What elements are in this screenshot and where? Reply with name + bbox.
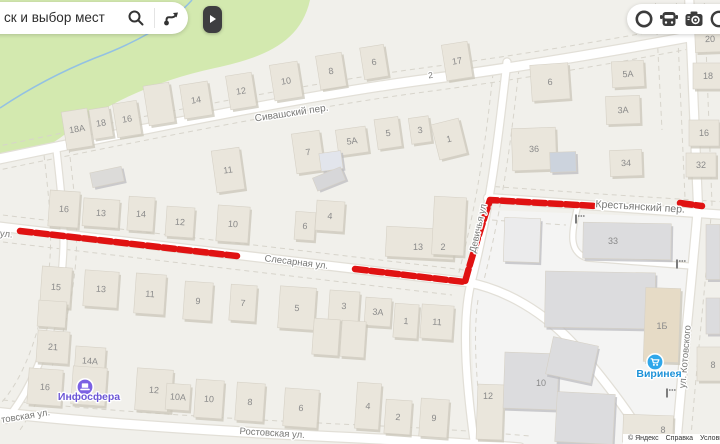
- building-label: 6: [298, 403, 304, 413]
- building-label: 13: [413, 242, 423, 252]
- building: [503, 217, 543, 265]
- building-label: 1: [403, 316, 409, 326]
- expand-arrow-icon: [210, 15, 216, 23]
- building: 6: [283, 388, 322, 431]
- building: 1: [393, 303, 421, 341]
- building: 6: [530, 63, 573, 104]
- camera-icon[interactable]: [683, 8, 705, 30]
- building-label: 6: [302, 221, 308, 231]
- building-label: 4: [365, 401, 371, 411]
- building: 4: [354, 382, 383, 432]
- building: [340, 320, 369, 360]
- building-label: 21: [48, 342, 59, 353]
- building-label: 5А: [622, 69, 634, 80]
- building-label: 3А: [617, 105, 628, 115]
- building-label: 1Б: [657, 321, 668, 331]
- building: [706, 298, 720, 337]
- building-label: 5А: [346, 135, 358, 146]
- building: 11: [133, 273, 168, 318]
- building-label: 3: [341, 301, 347, 311]
- divider: [154, 8, 155, 28]
- building: [555, 392, 618, 444]
- building-label: 8: [247, 397, 253, 407]
- building: 32: [686, 153, 718, 180]
- building-label: 16: [121, 113, 132, 124]
- building-label: 11: [432, 317, 442, 328]
- traffic-ring-icon[interactable]: [633, 8, 655, 30]
- building-label: 10: [280, 75, 291, 86]
- building-label: 11: [145, 289, 155, 300]
- building-label: 13: [96, 208, 107, 219]
- building: 3: [408, 115, 434, 146]
- building: 34: [610, 149, 645, 179]
- building: 6: [360, 44, 391, 82]
- building-label: 13: [96, 284, 107, 295]
- building: 18: [693, 63, 720, 92]
- building-label: 9: [431, 413, 437, 423]
- poi-label[interactable]: Инфосфера: [58, 391, 120, 403]
- building: 6: [294, 211, 318, 243]
- building: 4: [315, 200, 347, 235]
- building: 11: [420, 304, 456, 343]
- building: [544, 271, 657, 331]
- building: 5: [374, 116, 404, 152]
- building-label: 34: [621, 158, 631, 168]
- building-label: 10: [204, 394, 215, 405]
- map-app: 18А181614121086171175А53165А3А3634201816…: [0, 0, 720, 444]
- building-label: 18: [95, 117, 106, 128]
- map-canvas[interactable]: 18А181614121086171175А53165А3А3634201816…: [0, 0, 720, 444]
- building: [312, 318, 343, 358]
- building-label: 12: [149, 385, 160, 396]
- building: [37, 300, 69, 331]
- building-label: 8: [710, 360, 715, 370]
- building: 12: [165, 206, 197, 241]
- building-label: 33: [608, 236, 618, 246]
- building: 10: [216, 205, 253, 246]
- building-label: 12: [175, 217, 186, 228]
- building: 14: [127, 196, 157, 234]
- building: 7: [229, 284, 260, 324]
- building-label: 2: [440, 242, 445, 252]
- building-label: 14А: [82, 355, 99, 366]
- building-label: 3А: [372, 307, 384, 318]
- building: 12: [226, 72, 259, 112]
- building: 5А: [611, 60, 646, 90]
- building: [550, 151, 579, 174]
- terms-link[interactable]: Условия: [700, 435, 720, 442]
- building-label: 12: [483, 391, 493, 401]
- building-label: 15: [51, 282, 62, 293]
- building: 3А: [606, 95, 643, 127]
- search-bar[interactable]: ск и выбор мест: [0, 2, 188, 34]
- building: 11: [211, 147, 247, 195]
- search-icon[interactable]: [126, 8, 146, 28]
- building-label: 20: [705, 34, 715, 44]
- building: 16: [689, 120, 720, 149]
- building: 14: [180, 81, 215, 122]
- routes-icon[interactable]: [162, 8, 182, 28]
- map-layers-bar: [627, 4, 720, 34]
- help-link[interactable]: Справка: [666, 435, 693, 442]
- building-label: 10: [228, 219, 239, 230]
- building: 10: [194, 379, 227, 421]
- building-label: 10А: [170, 391, 187, 402]
- building-label: 14: [190, 94, 201, 105]
- building: 21: [36, 330, 72, 367]
- building-label: 2: [395, 412, 401, 422]
- building-label: 17: [451, 55, 462, 66]
- street-label: ул.: [0, 228, 13, 240]
- panel-expand-button[interactable]: [203, 6, 222, 33]
- building-label: 7: [240, 298, 246, 308]
- building: 9: [419, 398, 452, 440]
- transport-icon[interactable]: [658, 8, 680, 30]
- building-label: 11: [223, 164, 234, 175]
- building-label: 5: [294, 303, 300, 313]
- building-label: 10: [536, 378, 546, 388]
- building-label: 16: [59, 204, 70, 215]
- building-label: 4: [327, 211, 333, 221]
- building: 5: [277, 286, 318, 333]
- building-label: 14: [136, 209, 147, 220]
- building: 10: [269, 61, 305, 104]
- building: 16: [48, 190, 83, 231]
- building-label: 36: [529, 144, 539, 154]
- building: 13: [83, 270, 122, 311]
- building: [431, 196, 468, 258]
- building-label: 9: [195, 296, 201, 306]
- building: 2: [384, 399, 414, 437]
- building: 13: [82, 198, 122, 231]
- building: [706, 225, 720, 283]
- building: 10А: [165, 383, 193, 413]
- building-label: 6: [547, 77, 553, 87]
- building: [697, 347, 720, 384]
- copyright-text: © Яндекс: [628, 435, 659, 442]
- building-label: 16: [40, 382, 51, 393]
- building-label: 18: [703, 71, 713, 81]
- bookmark-icon[interactable]: [708, 8, 720, 30]
- poi-label[interactable]: Виринея: [636, 368, 681, 380]
- building-label: 16: [699, 128, 709, 138]
- building-label: 12: [235, 85, 246, 96]
- building: 8: [235, 382, 268, 424]
- building: 3А: [364, 297, 394, 329]
- attribution: © Яндекс Справка Условия: [623, 434, 720, 444]
- search-input[interactable]: ск и выбор мест: [4, 2, 105, 34]
- building: 8: [316, 52, 349, 92]
- building: [583, 222, 674, 262]
- building-label: 32: [696, 160, 706, 170]
- building: 17: [441, 41, 475, 83]
- building: 9: [183, 281, 216, 323]
